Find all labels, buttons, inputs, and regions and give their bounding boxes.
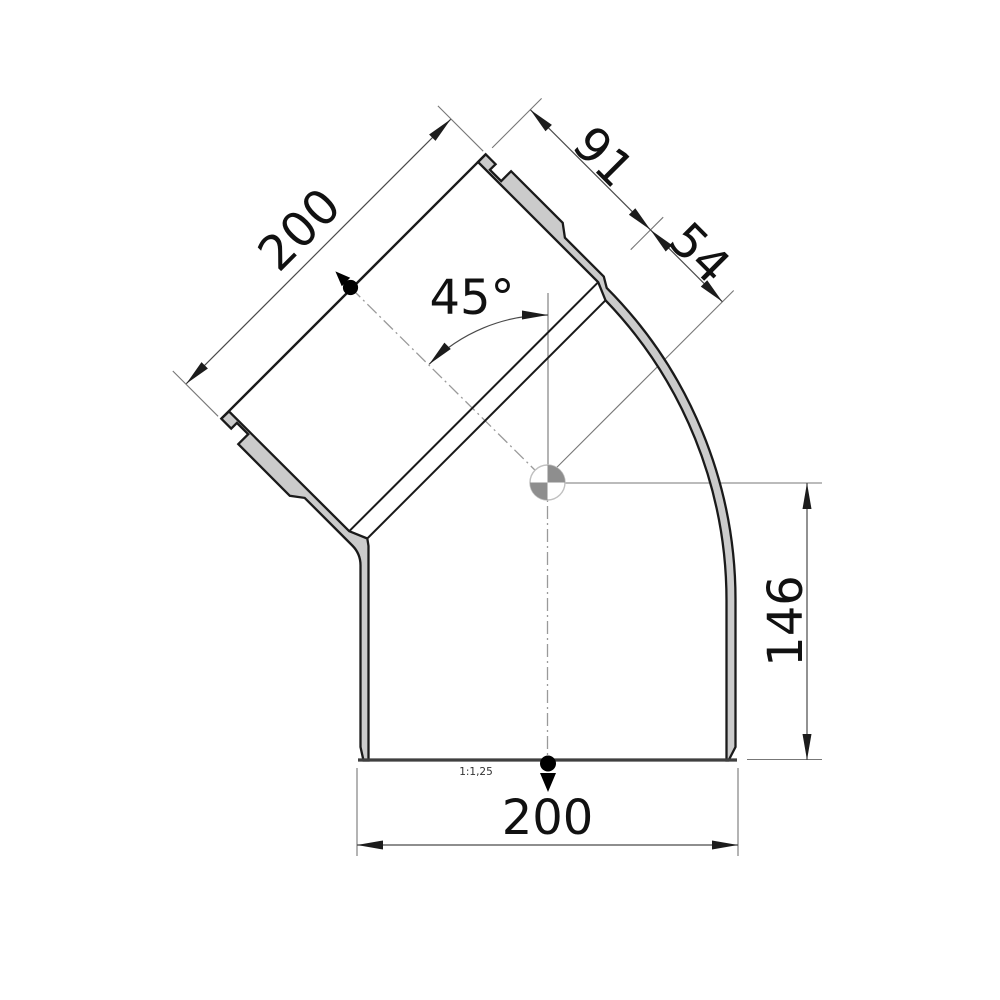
base-width-label: 200 (502, 790, 594, 846)
bend-angle-label: 45° (429, 270, 514, 326)
elbow-fitting-drawing: 200 91 54 45° 146 200 1:1,25 (0, 0, 1000, 1000)
centroid-icon (530, 465, 565, 500)
scale-note-label: 1:1,25 (459, 766, 493, 778)
center-height-label: 146 (758, 575, 814, 667)
technical-drawing-canvas: 200 91 54 45° 146 200 1:1,25 (0, 0, 1000, 1000)
outlet-dot (540, 756, 556, 772)
canvas-background (0, 0, 1000, 1000)
